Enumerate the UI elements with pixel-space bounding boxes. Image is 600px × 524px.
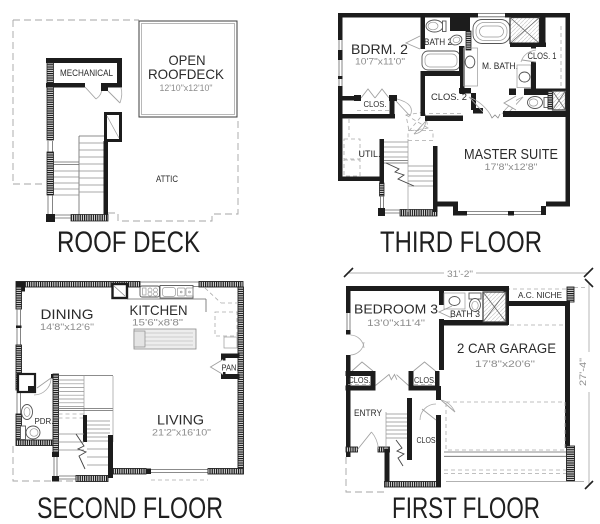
svg-text:BATH 2: BATH 2 <box>424 37 452 47</box>
svg-text:CLOS.: CLOS. <box>349 376 371 385</box>
svg-text:A.C. NICHE: A.C. NICHE <box>518 290 562 300</box>
svg-text:17'8"x20'6": 17'8"x20'6" <box>475 359 535 369</box>
svg-text:BATH 3: BATH 3 <box>450 309 480 319</box>
svg-text:ROOF DECK: ROOF DECK <box>57 226 200 259</box>
svg-text:M. BATH.: M. BATH. <box>482 61 518 72</box>
svg-text:27'-4": 27'-4" <box>578 358 589 386</box>
svg-text:BDRM. 2: BDRM. 2 <box>351 41 408 57</box>
svg-text:ENTRY: ENTRY <box>354 408 382 418</box>
svg-text:THIRD FLOOR: THIRD FLOOR <box>380 226 542 259</box>
svg-text:21'2"x16'10": 21'2"x16'10" <box>152 428 211 438</box>
svg-text:12'10"x12'10": 12'10"x12'10" <box>160 83 213 93</box>
svg-text:CLOS.: CLOS. <box>364 99 387 109</box>
svg-text:UTIL.: UTIL. <box>359 149 381 159</box>
svg-text:ATTIC: ATTIC <box>156 174 178 185</box>
svg-text:MECHANICAL: MECHANICAL <box>60 68 113 79</box>
svg-text:31'-2": 31'-2" <box>447 269 473 280</box>
svg-text:13'0"x11'4": 13'0"x11'4" <box>367 318 425 328</box>
svg-text:MASTER SUITE: MASTER SUITE <box>464 147 558 163</box>
svg-text:FIRST FLOOR: FIRST FLOOR <box>392 492 540 524</box>
svg-text:14'8"x12'6": 14'8"x12'6" <box>40 322 94 332</box>
svg-text:PAN.: PAN. <box>222 363 239 373</box>
svg-text:SECOND FLOOR: SECOND FLOOR <box>37 492 223 524</box>
svg-text:DINING: DINING <box>41 306 94 322</box>
svg-text:CLOS.: CLOS. <box>417 436 438 445</box>
svg-text:LIVING: LIVING <box>157 412 204 428</box>
svg-text:KITCHEN: KITCHEN <box>130 302 188 318</box>
svg-text:17'8"x12'8": 17'8"x12'8" <box>485 162 538 172</box>
svg-text:ROOFDECK: ROOFDECK <box>148 66 225 82</box>
svg-text:BEDROOM 3: BEDROOM 3 <box>354 302 438 317</box>
svg-text:15'6"x8'8": 15'6"x8'8" <box>132 318 183 328</box>
svg-text:PDR.: PDR. <box>35 416 54 426</box>
svg-text:10'7"x11'0": 10'7"x11'0" <box>355 57 405 67</box>
svg-text:CLOS. 1: CLOS. 1 <box>528 51 557 61</box>
svg-text:CLOS.: CLOS. <box>414 376 436 385</box>
svg-text:2 CAR GARAGE: 2 CAR GARAGE <box>457 340 556 356</box>
